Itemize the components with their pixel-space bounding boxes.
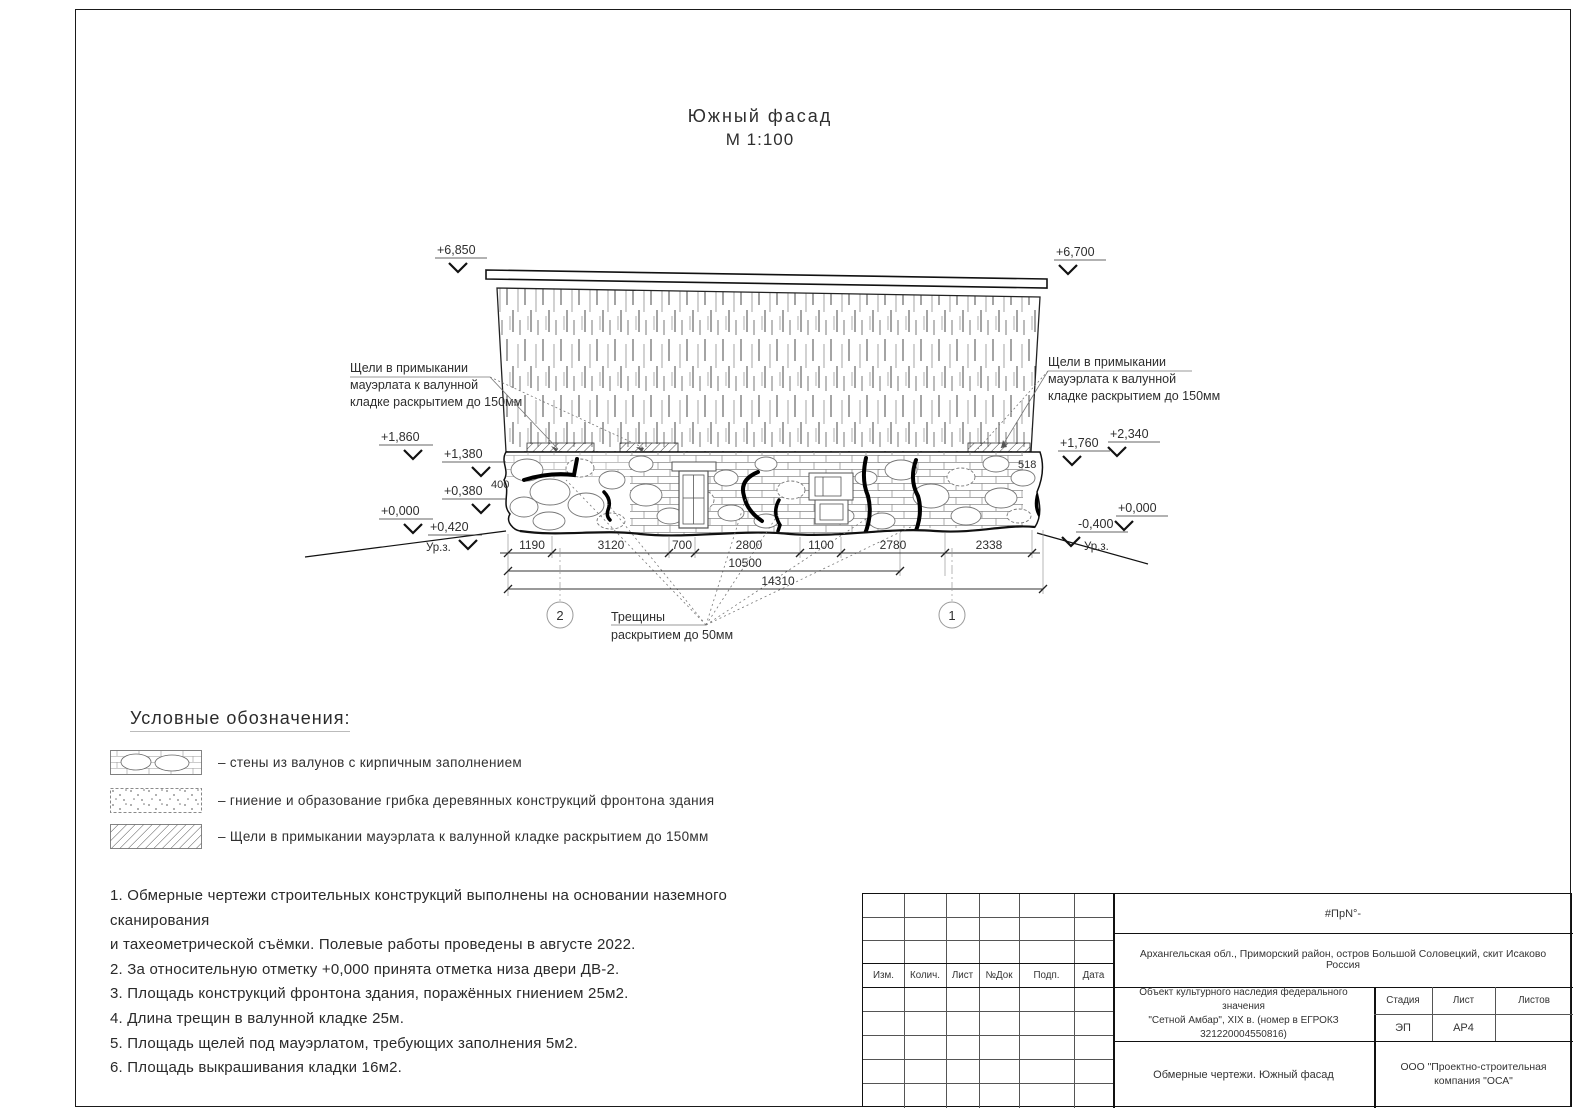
svg-text:Щели в примыкании: Щели в примыкании [350,361,468,375]
drawing-sheet-title: Обмерные чертежи. Южный фасад [1113,1041,1374,1108]
note-line: 3. Площадь конструкций фронтона здания, … [110,982,830,1007]
svg-text:1100: 1100 [808,538,834,552]
svg-text:2: 2 [556,608,563,623]
svg-text:раскрытием до 50мм: раскрытием до 50мм [611,628,733,642]
rev-col-kolich: Колич. [904,963,946,987]
legend-item: – стены из валунов с кирпичным заполнени… [110,750,522,775]
note-line: 6. Площадь выкрашивания кладки 16м2. [110,1056,830,1081]
svg-text:+1,380: +1,380 [444,447,483,461]
svg-text:2338: 2338 [976,538,1003,552]
sheets-value [1495,1014,1573,1041]
svg-text:Щели в примыкании: Щели в примыкании [1048,355,1166,369]
svg-text:+6,700: +6,700 [1056,245,1095,259]
svg-text:+2,340: +2,340 [1110,427,1149,441]
legend-item-label: – Щели в примыкании мауэрлата к валунной… [218,829,709,844]
svg-text:+0,420: +0,420 [430,520,469,534]
rot-fungus-swatch [110,788,202,813]
rev-col-list: Лист [946,963,979,987]
legend-title: Условные обозначения: [130,708,350,732]
legend-item: – гниение и образование грибка деревянны… [110,788,714,813]
svg-text:+0,000: +0,000 [381,504,420,518]
svg-text:+0,380: +0,380 [444,484,483,498]
drawing-sheet: Южный фасад М 1:100 [0,0,1582,1118]
boulder-masonry-band [504,452,1042,540]
stage-header: Стадия [1374,987,1432,1014]
note-line: и тахеометрической съёмки. Полевые работ… [110,933,830,958]
svg-text:1: 1 [948,608,955,623]
company-name: ООО "Проектно-строительная компания "ОСА… [1374,1041,1573,1108]
legend-item-label: – стены из валунов с кирпичным заполнени… [218,755,522,770]
rev-col-data: Дата [1074,963,1113,987]
svg-text:кладке раскрытием до 150мм: кладке раскрытием до 150мм [1048,389,1220,403]
svg-text:мауэрлата к валунной: мауэрлата к валунной [1048,372,1176,386]
legend-item: – Щели в примыкании мауэрлата к валунной… [110,824,709,849]
rev-col-dok: №Док [979,963,1019,987]
svg-text:мауэрлата к валунной: мауэрлата к валунной [350,378,478,392]
svg-text:-0,400: -0,400 [1078,517,1113,531]
object-address: Архангельская обл., Приморский район, ос… [1113,933,1573,987]
dimension-lines: 1190 3120 700 2800 1100 2780 2338 10500 … [500,530,1047,596]
sheet-value: АР4 [1432,1014,1495,1041]
svg-text:1190: 1190 [519,538,545,552]
note-line: 2. За относительную отметку +0,000 приня… [110,958,830,983]
note-line: 4. Длина трещин в валунной кладке 25м. [110,1007,830,1032]
mauerlat-gap-swatch [110,824,202,849]
doc-code: #ПрN°- [1113,894,1573,933]
sheets-header: Листов [1495,987,1573,1014]
boulder-masonry-swatch [110,750,202,775]
legend-item-label: – гниение и образование грибка деревянны… [218,793,714,808]
svg-text:2780: 2780 [880,538,907,552]
svg-text:+1,860: +1,860 [381,430,420,444]
gable-wall [497,288,1040,452]
svg-text:кладке раскрытием до 150мм: кладке раскрытием до 150мм [350,395,522,409]
notes-block: 1. Обмерные чертежи строительных констру… [110,884,830,1081]
title-block-stamp: Изм. Колич. Лист №Док Подп. Дата #ПрN°- … [862,893,1572,1107]
svg-text:2800: 2800 [736,538,763,552]
svg-text:Трещины: Трещины [611,610,665,624]
svg-text:14310: 14310 [761,574,795,588]
note-line: 5. Площадь щелей под мауэрлатом, требующ… [110,1032,830,1057]
roof-band [486,270,1047,288]
svg-text:+6,850: +6,850 [437,243,476,257]
svg-text:+1,760: +1,760 [1060,436,1099,450]
wall-dim: 400 [491,479,509,491]
wall-opening [809,473,853,524]
wall-dim: 518 [1018,459,1036,471]
rev-col-podp: Подп. [1019,963,1074,987]
facade-drawing: +6,850 +1,860 +1,380 +0,380 +0,000 +0,42… [0,0,1582,700]
sheet-header: Лист [1432,987,1495,1014]
svg-text:+0,000: +0,000 [1118,501,1157,515]
svg-text:700: 700 [672,538,692,552]
svg-text:3120: 3120 [598,538,625,552]
rev-col-izm: Изм. [863,963,904,987]
svg-text:10500: 10500 [728,556,762,570]
stage-value: ЭП [1374,1014,1432,1041]
object-name: Объект культурного наследия федерального… [1113,987,1374,1041]
note-line: 1. Обмерные чертежи строительных констру… [110,884,830,933]
svg-text:Ур.з.: Ур.з. [1084,541,1109,553]
svg-text:Ур.з.: Ур.з. [426,542,451,554]
